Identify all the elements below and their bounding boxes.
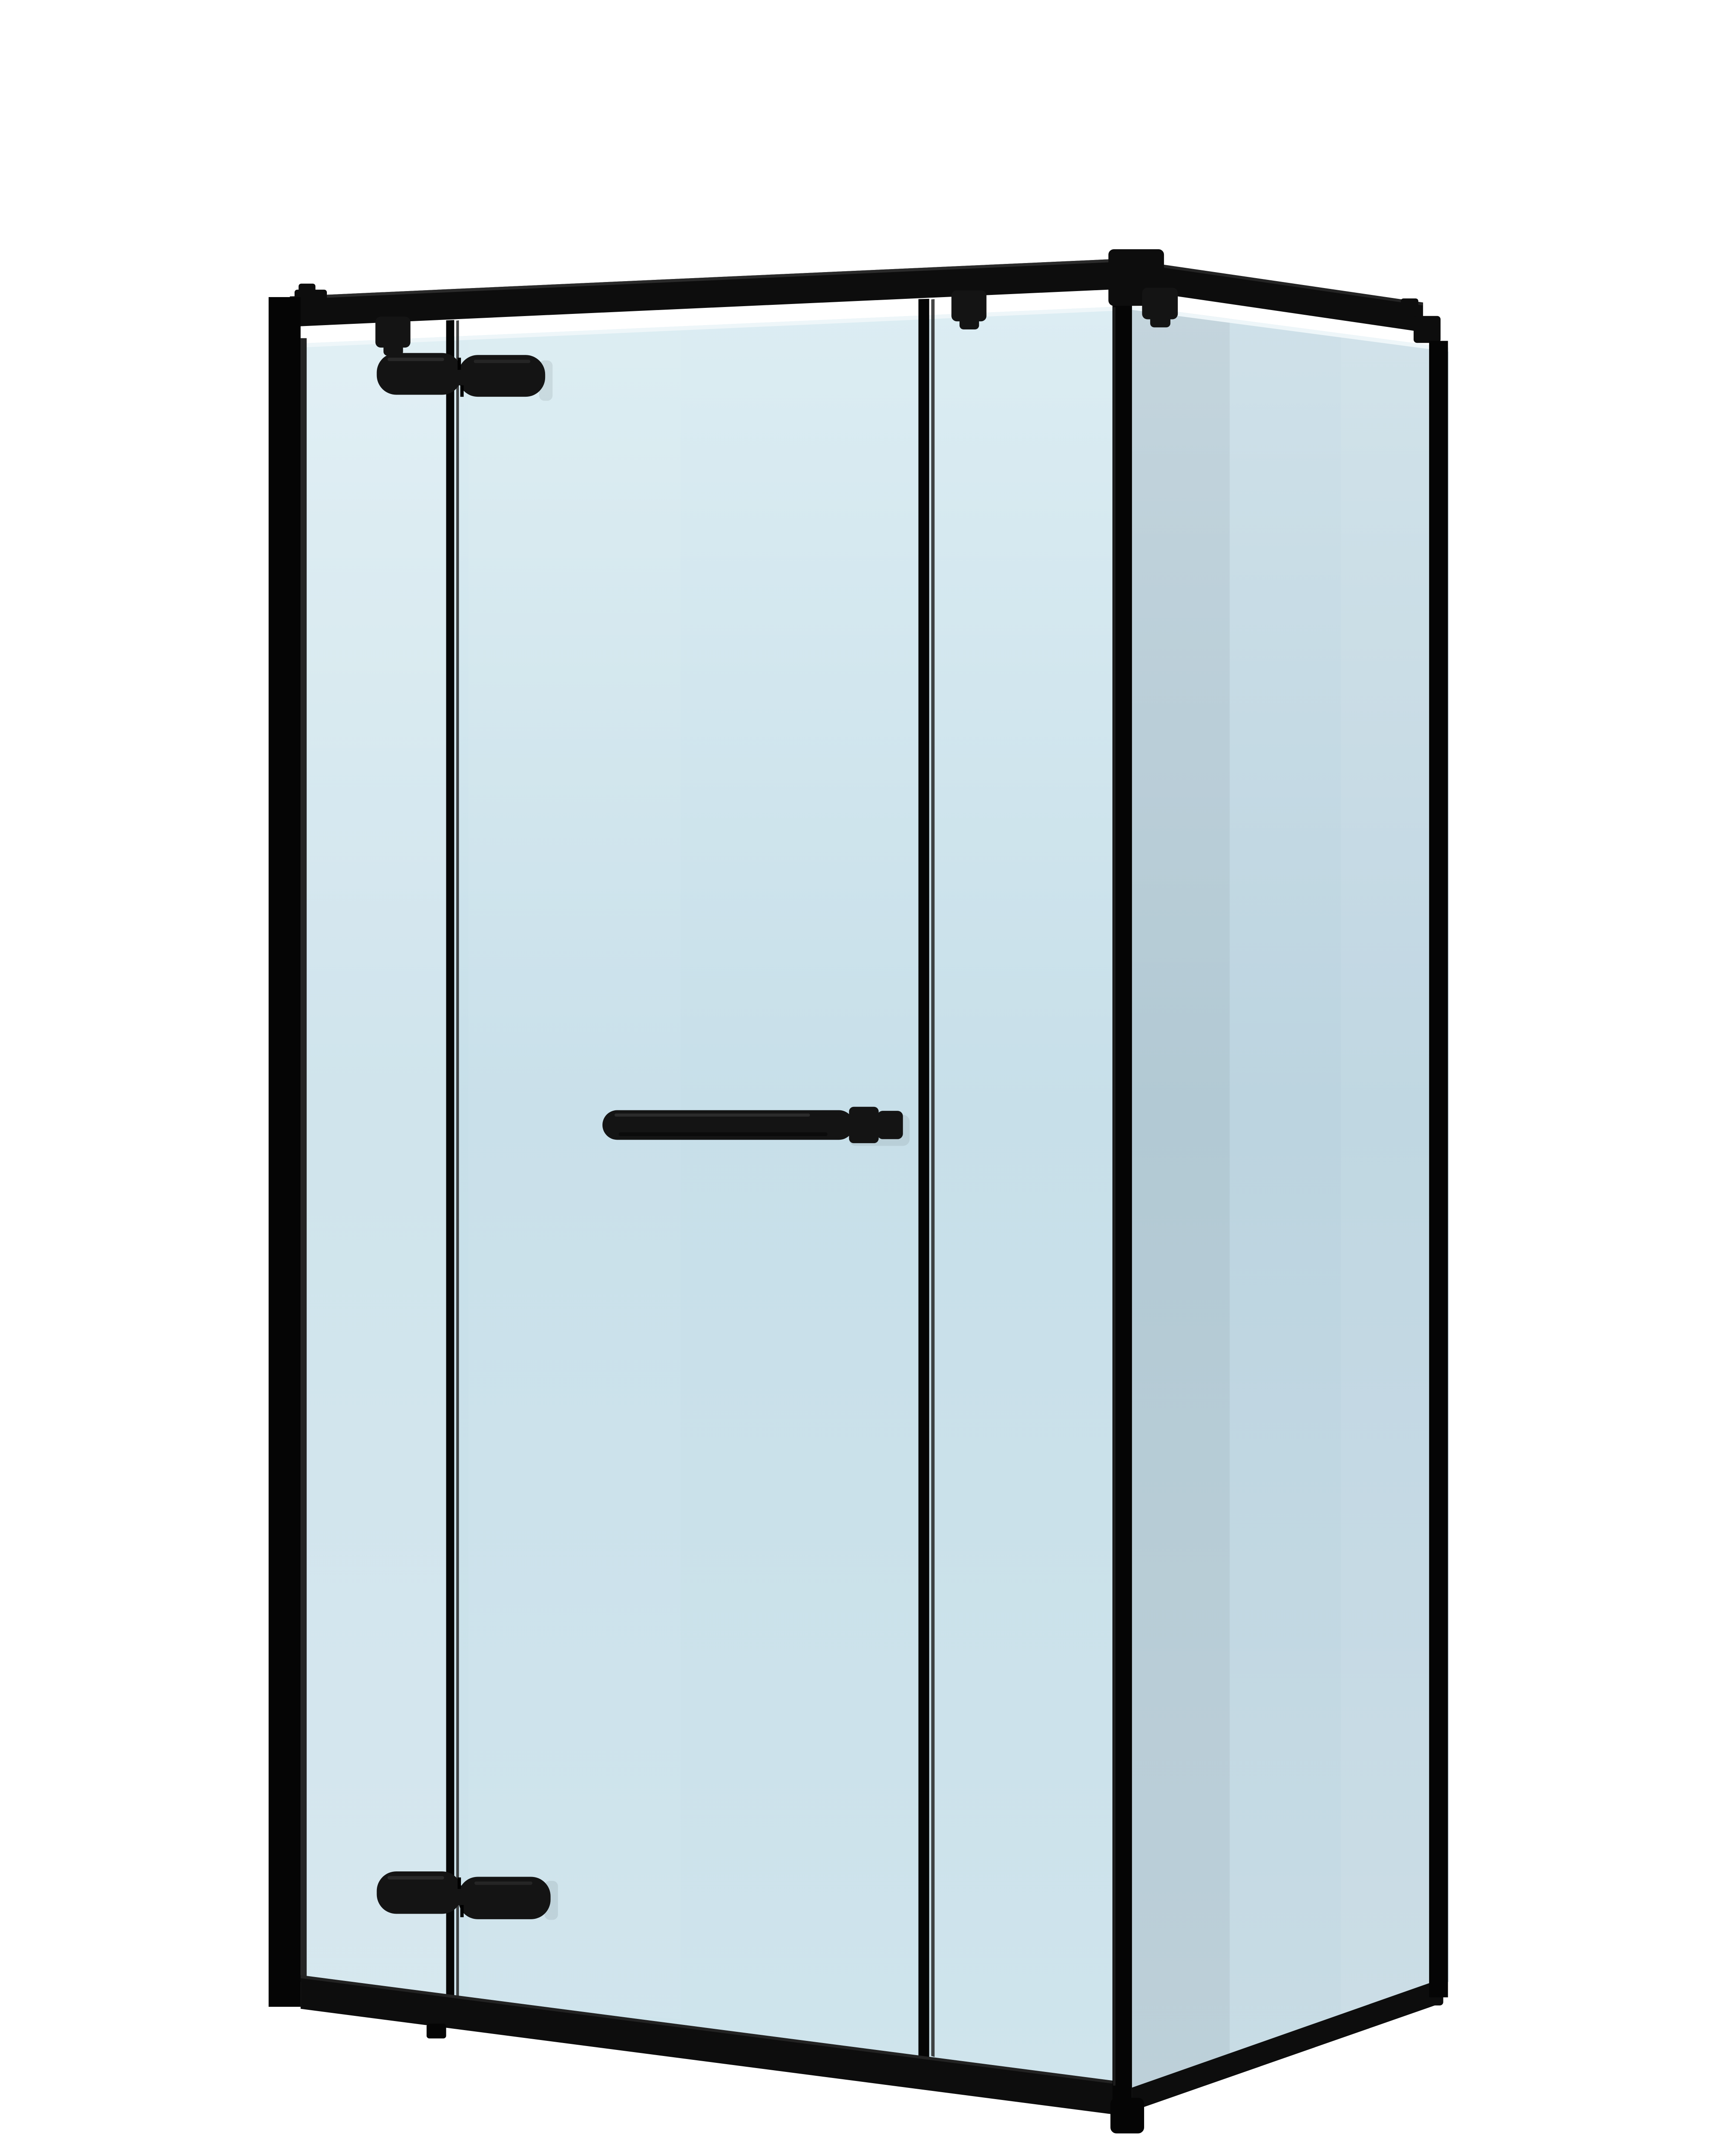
- door-closing-gap-line: [919, 299, 929, 2057]
- lower-hinge-sheen-left: [388, 1876, 444, 1880]
- glass-clamp-right-body: [951, 290, 986, 321]
- glass-clamp-side-body: [1142, 288, 1178, 319]
- door-reflection-band: [468, 329, 681, 2019]
- door-handle-collar: [849, 1107, 879, 1143]
- wall-profile-assembly: [269, 297, 307, 2007]
- shower-enclosure-render: [0, 0, 1725, 2156]
- glass-clamp-side-foot: [1150, 316, 1170, 328]
- upper-hinge-seam-bottom: [460, 385, 464, 397]
- door-handle-sheen: [615, 1113, 810, 1116]
- bracket-top-rear: [1414, 316, 1440, 343]
- lower-hinge-seam-top: [458, 1877, 461, 1889]
- door-hinge-gap-line: [446, 320, 455, 1998]
- lower-hinge-sheen-right: [474, 1881, 532, 1885]
- wall-profile-inner-strip: [301, 338, 307, 1982]
- front-glass-assembly: [305, 299, 1112, 2082]
- glass-clamp-right-foot: [960, 318, 979, 329]
- side-glass-corner-shade: [1132, 306, 1230, 2090]
- rear-wall-profile: [1429, 341, 1448, 1998]
- side-glass-assembly: [1132, 306, 1449, 2090]
- upper-hinge-seam-top: [458, 358, 461, 370]
- glass-clamp-left-body: [375, 317, 410, 348]
- upper-hinge-sheen-left: [388, 358, 444, 361]
- bracket-top-rear-tab: [1401, 298, 1418, 316]
- door-hinge-gap-line-inner: [456, 320, 459, 1997]
- door-closing-gap-line-inner: [931, 299, 935, 2057]
- wall-profile-left: [269, 297, 301, 2007]
- fixed-panel-left-tint: [306, 337, 446, 1996]
- bottom-rail-foot-tab: [427, 2024, 446, 2038]
- product-render-stage: [0, 0, 1725, 2156]
- door-handle-base: [877, 1111, 903, 1139]
- upper-hinge-sheen-right: [474, 360, 530, 363]
- door-handle-shade: [618, 1132, 827, 1136]
- corner-post-edge-highlight: [1113, 307, 1115, 2085]
- corner-foot: [1110, 2098, 1144, 2134]
- lower-hinge-seam-bottom: [460, 1905, 464, 1917]
